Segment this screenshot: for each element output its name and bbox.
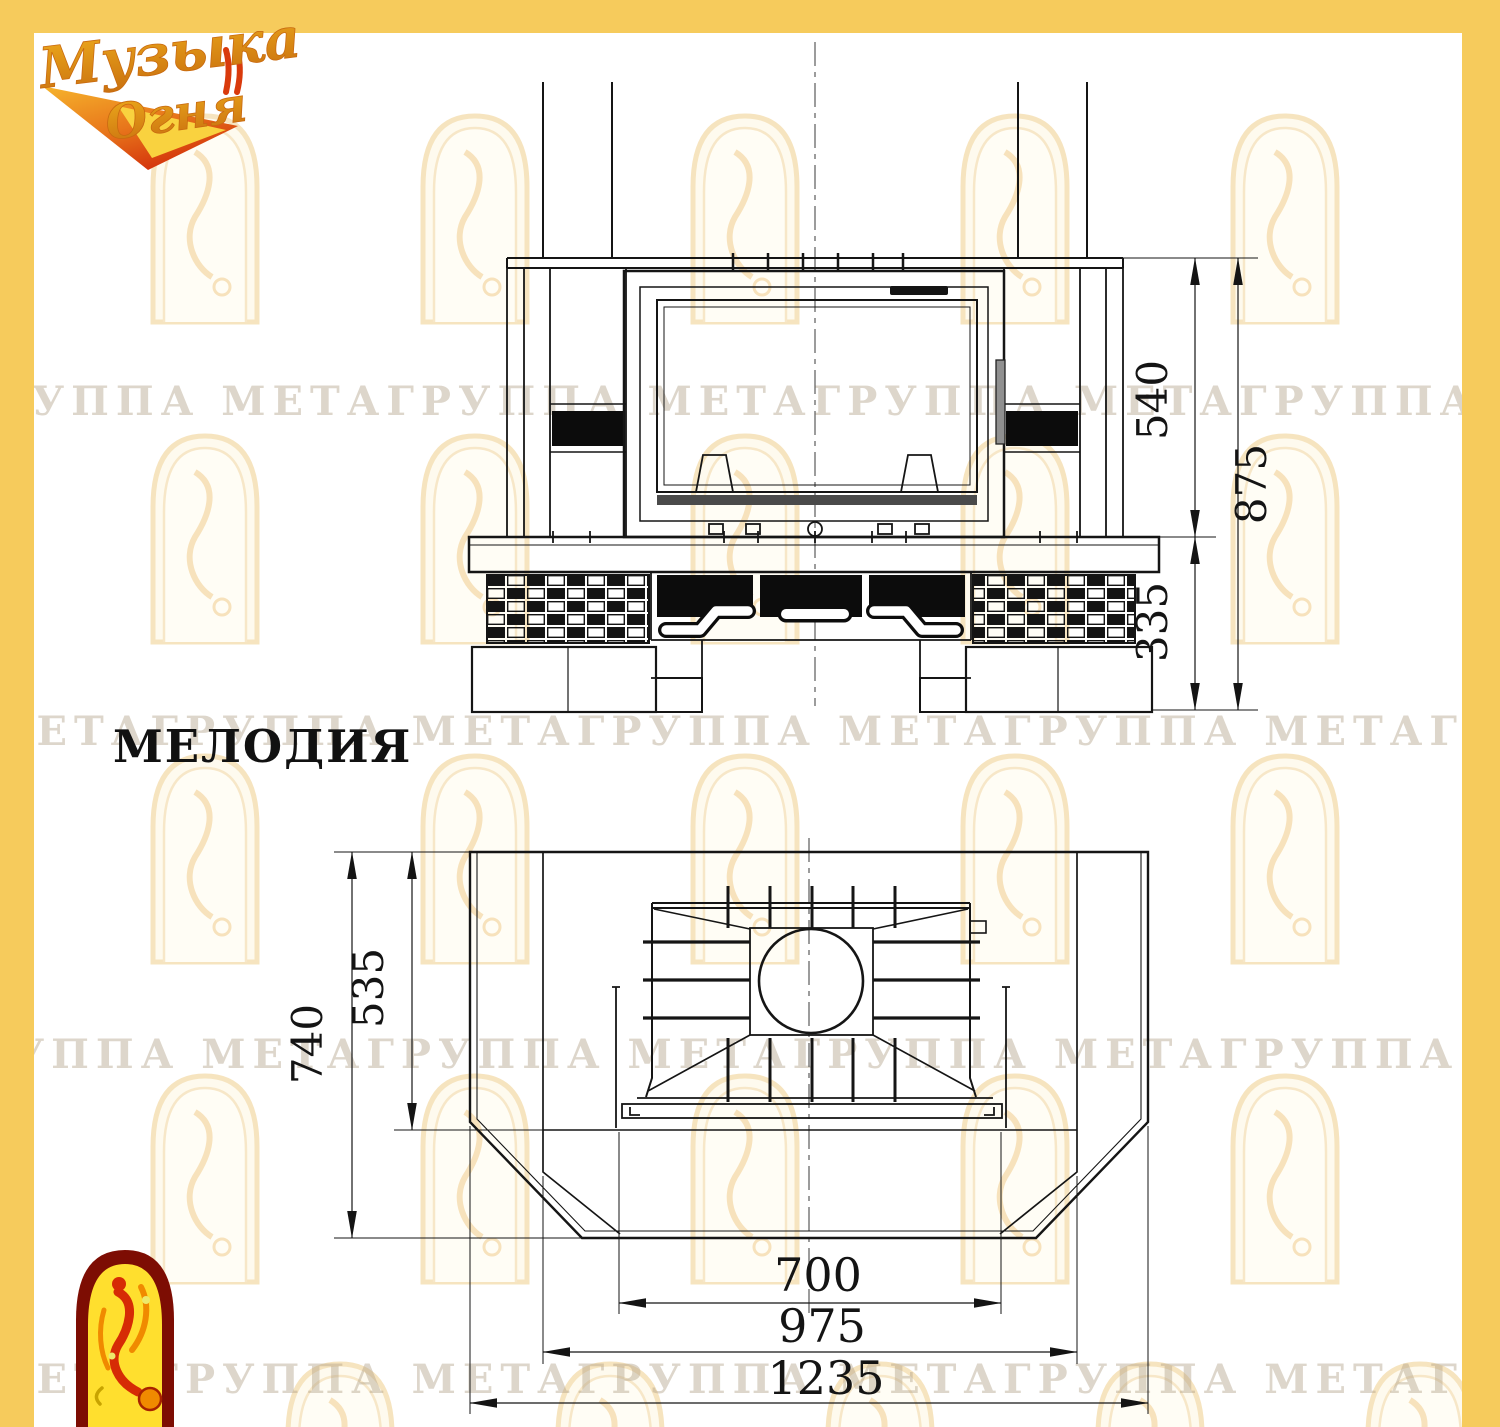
front-dim-total-height-label: 875 [1227, 444, 1276, 524]
frame-left [0, 0, 34, 1427]
front-dim-base-height-label: 335 [1128, 582, 1177, 662]
firebird-arch-emblem [76, 1250, 174, 1427]
column-accent-left [552, 411, 624, 446]
brick-pillar-right [973, 575, 1135, 643]
watermark-row: ГРУППА МЕТАГРУППА МЕТАГРУППА МЕТАГРУППА … [0, 378, 1500, 425]
plan-dim-depth-hearth-label: 535 [344, 948, 393, 1028]
plan-dim-opening-width-label: 700 [774, 1248, 862, 1302]
front-dim-firebox-height-label: 540 [1128, 360, 1177, 440]
brick-pillar-left [487, 575, 649, 643]
model-name-title: МЕЛОДИЯ [113, 720, 412, 773]
fireplace-dimension-drawing: ГРУППА МЕТАГРУППА МЕТАГРУППА МЕТАГРУППА … [0, 0, 1500, 1427]
plan-dim-inner-width-label: 975 [778, 1299, 866, 1353]
watermark-row: ПА МЕТАГРУППА МЕТАГРУППА МЕТАГРУППА МЕТА… [0, 1356, 1500, 1403]
door-handle [996, 360, 1005, 444]
plan-dim-overall-width-label: 1235 [767, 1351, 884, 1405]
drawing-sheet: ГРУППА МЕТАГРУППА МЕТАГРУППА МЕТАГРУППА … [0, 0, 1500, 1427]
watermark-row: ГРУППА МЕТАГРУППА МЕТАГРУППА МЕТАГРУППА … [0, 1031, 1500, 1078]
column-accent-right [1006, 411, 1078, 446]
plan-dim-depth-total-label: 740 [283, 1004, 332, 1084]
frame-right [1462, 0, 1500, 1427]
door-sill [657, 495, 977, 505]
insert-brand-mark [890, 286, 948, 295]
